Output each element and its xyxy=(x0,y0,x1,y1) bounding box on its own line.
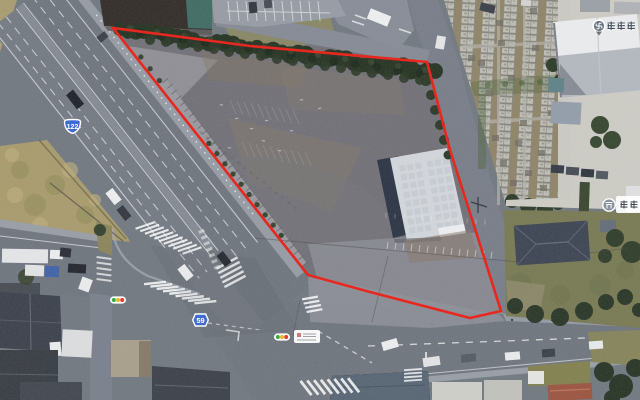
svg-text:122: 122 xyxy=(67,124,79,131)
svg-text:59: 59 xyxy=(196,316,204,325)
